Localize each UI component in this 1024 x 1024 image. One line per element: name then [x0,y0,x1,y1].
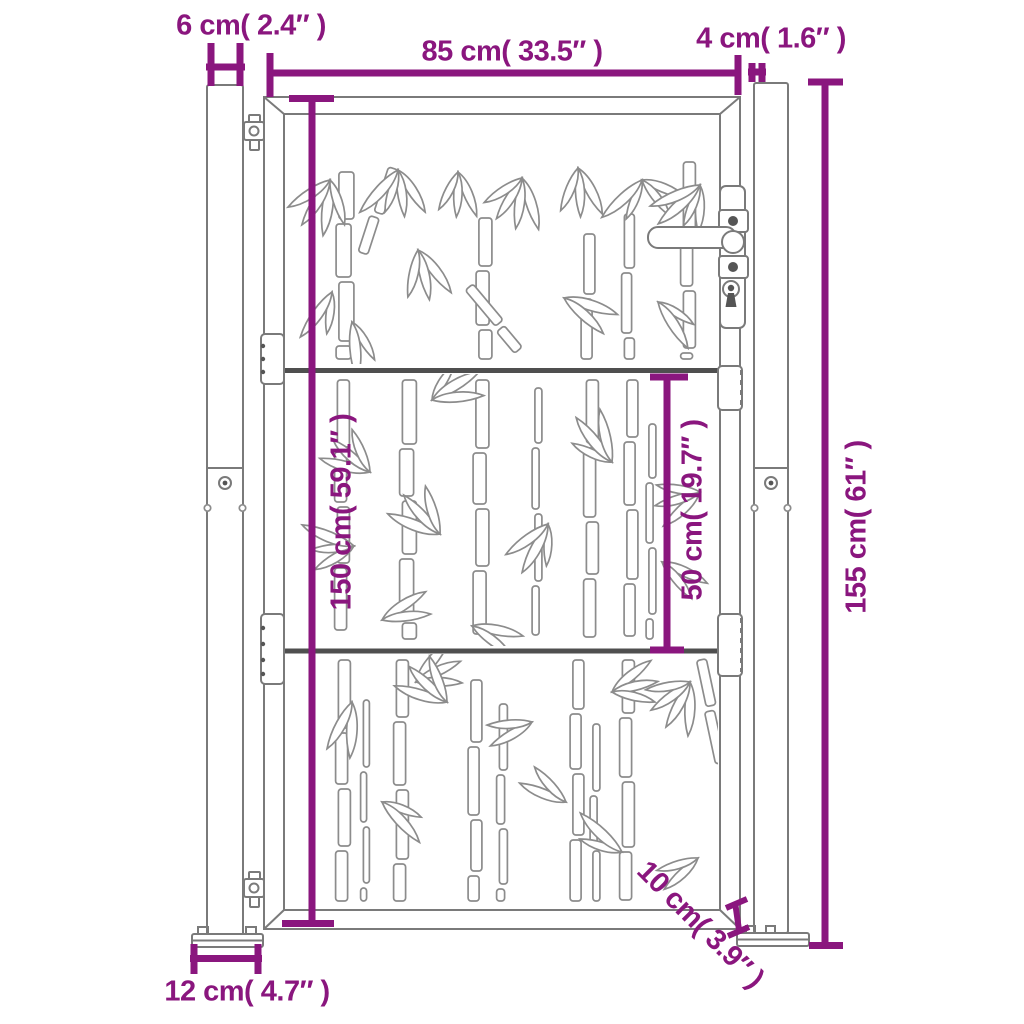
dim-label-gap-width: 4 cm( 1.6″ ) [696,25,846,54]
dim-label-base-plate: 12 cm( 4.7″ ) [164,978,329,1007]
latch-keeper [718,614,742,676]
left-post [192,85,264,947]
top-hinge [244,115,264,150]
dim-total-height [808,82,843,946]
dim-base-plate [190,944,262,974]
product-dimension-diagram: 6 cm( 2.4″ ) 85 cm( 33.5″ ) 4 cm( 1.6″ )… [0,0,1024,1024]
dim-label-gate-height: 150 cm( 59.1″ ) [328,414,357,611]
bottom-hinge [244,872,264,907]
dim-post-width [206,43,245,86]
hinge-strap [261,614,284,684]
latch-keeper [718,366,742,410]
hinge-strap [261,334,284,384]
dim-label-gate-width: 85 cm( 33.5″ ) [422,38,603,67]
dim-label-mid-section: 50 cm( 19.7″ ) [679,420,708,601]
dim-label-post-width: 6 cm( 2.4″ ) [176,12,326,41]
dim-gap-width [748,63,766,82]
dim-label-total-height: 155 cm( 61″ ) [843,440,872,613]
